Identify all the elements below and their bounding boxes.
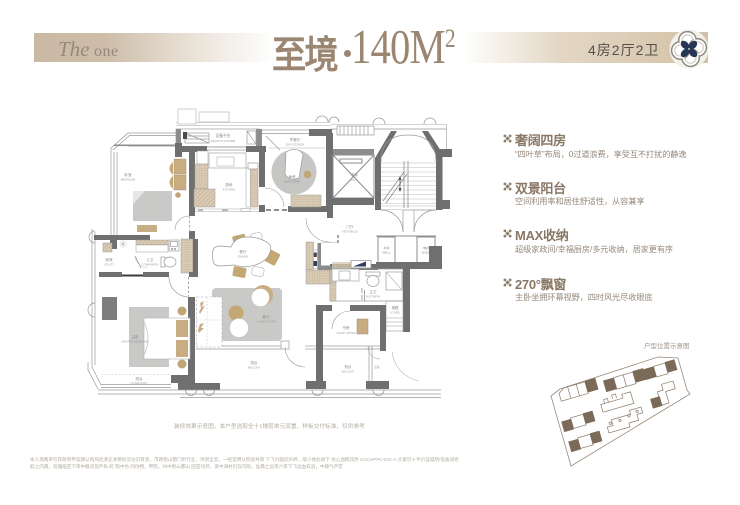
svg-text:餐厅: 餐厅 [239,249,247,254]
svg-text:EQUIP PLATFORM: EQUIP PLATFORM [211,139,236,143]
svg-text:门厅: 门厅 [346,224,354,229]
svg-text:阳台: 阳台 [251,360,258,365]
svg-text:BALCONY: BALCONY [248,366,261,370]
svg-text:UTILITY: UTILITY [104,263,115,267]
svg-text:COMM BATH: COMM BATH [142,263,159,267]
svg-text:STORE: STORE [391,311,400,315]
svg-text:书房: 书房 [342,325,350,330]
svg-text:家政: 家政 [105,257,113,262]
svg-text:厨房: 厨房 [225,182,233,187]
svg-text:设备平台: 设备平台 [215,133,230,138]
svg-text:BEDROOM: BEDROOM [121,178,136,182]
svg-text:公卫: 公卫 [146,257,154,262]
svg-text:KITCHEN: KITCHEN [223,188,235,192]
svg-text:LIV BALCONY: LIV BALCONY [130,381,147,385]
svg-text:LIFT: LIFT [351,178,357,182]
svg-text:早餐厅: 早餐厅 [290,137,301,142]
svg-text:休闲: 休闲 [289,174,296,179]
svg-text:EASY CHAIR: EASY CHAIR [284,180,300,184]
svg-text:户型位置示意图: 户型位置示意图 [644,341,690,350]
svg-text:WELL: WELL [382,251,391,255]
svg-text:客厅: 客厅 [262,314,270,319]
svg-text:BALCONY: BALCONY [342,370,355,374]
svg-text:阳台: 阳台 [136,376,143,381]
svg-text:电梯: 电梯 [350,172,358,177]
svg-text:SUIT BATH: SUIT BATH [366,295,380,299]
svg-text:主卫: 主卫 [369,289,377,294]
svg-text:卧室: 卧室 [124,172,132,177]
svg-text:MASTER BEDROOM: MASTER BEDROOM [122,340,150,344]
svg-text:VESTIBULE: VESTIBULE [342,230,358,234]
svg-text:储藏: 储藏 [392,305,399,310]
svg-text:设备: 设备 [374,365,380,369]
svg-text:阳台: 阳台 [345,364,352,369]
svg-text:STUDY ROOM: STUDY ROOM [337,331,357,335]
svg-text:DINING: DINING [238,255,248,259]
svg-text:LIVING ROOM: LIVING ROOM [257,320,276,324]
svg-text:EAT KITCHEN: EAT KITCHEN [286,143,304,147]
svg-text:水井: 水井 [383,245,389,250]
svg-text:电井: 电井 [423,245,429,250]
svg-text:主卧: 主卧 [131,334,139,339]
